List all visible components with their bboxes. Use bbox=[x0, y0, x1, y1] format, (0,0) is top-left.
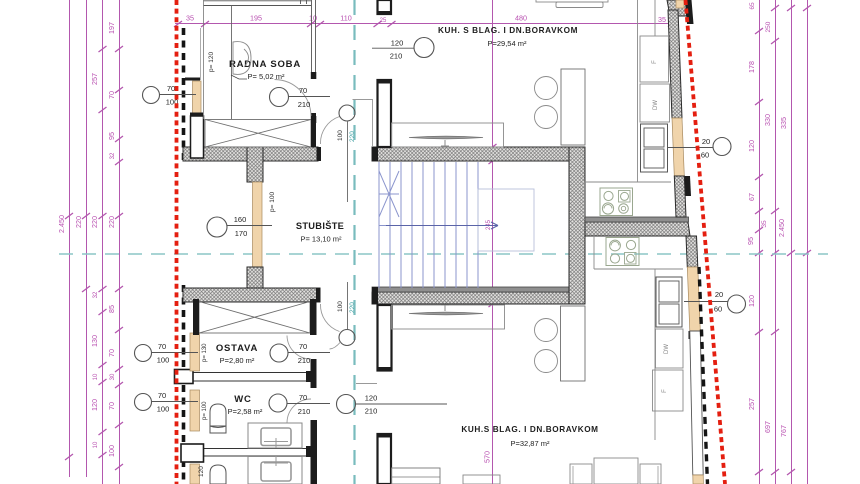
svg-text:p= 100: p= 100 bbox=[269, 192, 276, 212]
svg-text:60: 60 bbox=[701, 151, 709, 160]
svg-text:35: 35 bbox=[658, 15, 666, 24]
svg-text:70: 70 bbox=[299, 86, 307, 95]
svg-text:F: F bbox=[662, 389, 668, 393]
svg-text:KUH.S BLAG. I DN.BORAVKOM: KUH.S BLAG. I DN.BORAVKOM bbox=[461, 425, 598, 434]
svg-text:95: 95 bbox=[107, 132, 116, 140]
svg-text:DW: DW bbox=[664, 344, 670, 354]
svg-text:10: 10 bbox=[93, 441, 99, 448]
svg-text:70: 70 bbox=[158, 342, 166, 351]
svg-text:P= 13,10 m²: P= 13,10 m² bbox=[300, 235, 342, 244]
svg-text:STUBIŠTE: STUBIŠTE bbox=[296, 220, 344, 231]
svg-text:178: 178 bbox=[747, 61, 756, 73]
svg-text:25: 25 bbox=[380, 18, 387, 24]
svg-text:220: 220 bbox=[90, 216, 99, 228]
svg-text:100: 100 bbox=[157, 356, 170, 365]
svg-text:210: 210 bbox=[298, 356, 311, 365]
svg-text:2.450: 2.450 bbox=[57, 215, 66, 233]
svg-text:250: 250 bbox=[765, 21, 772, 32]
svg-text:210: 210 bbox=[365, 407, 378, 416]
svg-text:120: 120 bbox=[747, 295, 756, 307]
svg-text:210: 210 bbox=[298, 100, 311, 109]
svg-text:70: 70 bbox=[158, 391, 166, 400]
svg-text:P=2,58 m²: P=2,58 m² bbox=[228, 407, 263, 416]
svg-text:195: 195 bbox=[250, 14, 262, 23]
svg-text:P=29,54 m²: P=29,54 m² bbox=[488, 39, 527, 48]
svg-text:p= 120: p= 120 bbox=[208, 52, 215, 72]
svg-text:2.450: 2.450 bbox=[777, 219, 786, 237]
svg-text:100: 100 bbox=[337, 130, 344, 141]
svg-text:KUH. S BLAG. I DN.BORAVKOM: KUH. S BLAG. I DN.BORAVKOM bbox=[438, 26, 578, 35]
svg-text:70: 70 bbox=[167, 84, 175, 93]
svg-text:20: 20 bbox=[702, 137, 710, 146]
svg-text:P=2,80 m²: P=2,80 m² bbox=[220, 356, 255, 365]
svg-text:P=32,87 m²: P=32,87 m² bbox=[511, 439, 550, 448]
svg-text:65: 65 bbox=[749, 2, 756, 10]
svg-text:67: 67 bbox=[747, 193, 756, 201]
svg-text:197: 197 bbox=[107, 22, 116, 34]
svg-text:70: 70 bbox=[107, 402, 116, 410]
svg-text:100: 100 bbox=[157, 405, 170, 414]
svg-text:110: 110 bbox=[340, 14, 351, 23]
svg-text:70: 70 bbox=[107, 349, 116, 357]
svg-text:35: 35 bbox=[186, 14, 194, 23]
svg-text:130: 130 bbox=[90, 335, 99, 347]
svg-text:120: 120 bbox=[747, 140, 756, 152]
svg-text:767: 767 bbox=[779, 425, 788, 437]
svg-text:120: 120 bbox=[198, 466, 205, 477]
svg-text:335: 335 bbox=[779, 117, 788, 129]
svg-text:170: 170 bbox=[235, 229, 248, 238]
svg-text:220: 220 bbox=[349, 302, 356, 313]
svg-text:570: 570 bbox=[483, 451, 492, 463]
svg-text:RADNA SOBA: RADNA SOBA bbox=[229, 59, 301, 70]
svg-text:30: 30 bbox=[110, 373, 116, 380]
svg-text:220: 220 bbox=[349, 131, 356, 142]
svg-text:70: 70 bbox=[107, 91, 116, 99]
svg-text:35: 35 bbox=[761, 220, 768, 228]
svg-text:OSTAVA: OSTAVA bbox=[216, 343, 258, 354]
svg-text:120: 120 bbox=[391, 39, 404, 48]
svg-text:100: 100 bbox=[107, 445, 116, 457]
svg-text:60: 60 bbox=[714, 305, 722, 314]
svg-text:220: 220 bbox=[107, 216, 116, 228]
svg-text:DW: DW bbox=[653, 100, 659, 110]
svg-text:257: 257 bbox=[90, 73, 99, 85]
svg-text:32: 32 bbox=[93, 291, 99, 298]
svg-text:95: 95 bbox=[746, 237, 755, 245]
svg-text:257: 257 bbox=[747, 398, 756, 410]
svg-text:697: 697 bbox=[763, 421, 772, 433]
svg-text:F: F bbox=[652, 60, 658, 64]
svg-text:120: 120 bbox=[365, 394, 378, 403]
svg-text:10: 10 bbox=[93, 373, 99, 380]
svg-text:20: 20 bbox=[715, 290, 723, 299]
svg-text:p= 100: p= 100 bbox=[202, 401, 208, 420]
svg-text:330: 330 bbox=[763, 114, 772, 126]
svg-text:70: 70 bbox=[299, 342, 307, 351]
svg-text:220: 220 bbox=[74, 216, 83, 228]
svg-text:85: 85 bbox=[107, 305, 116, 313]
svg-text:210: 210 bbox=[298, 407, 311, 416]
svg-text:70: 70 bbox=[299, 393, 307, 402]
svg-text:480: 480 bbox=[515, 14, 527, 23]
svg-text:32: 32 bbox=[110, 152, 116, 159]
svg-text:p= 130: p= 130 bbox=[202, 343, 208, 362]
svg-text:100: 100 bbox=[337, 301, 344, 312]
svg-text:210: 210 bbox=[390, 52, 403, 61]
svg-text:WC: WC bbox=[234, 394, 251, 405]
svg-text:120: 120 bbox=[90, 399, 99, 411]
svg-text:160: 160 bbox=[234, 215, 247, 224]
